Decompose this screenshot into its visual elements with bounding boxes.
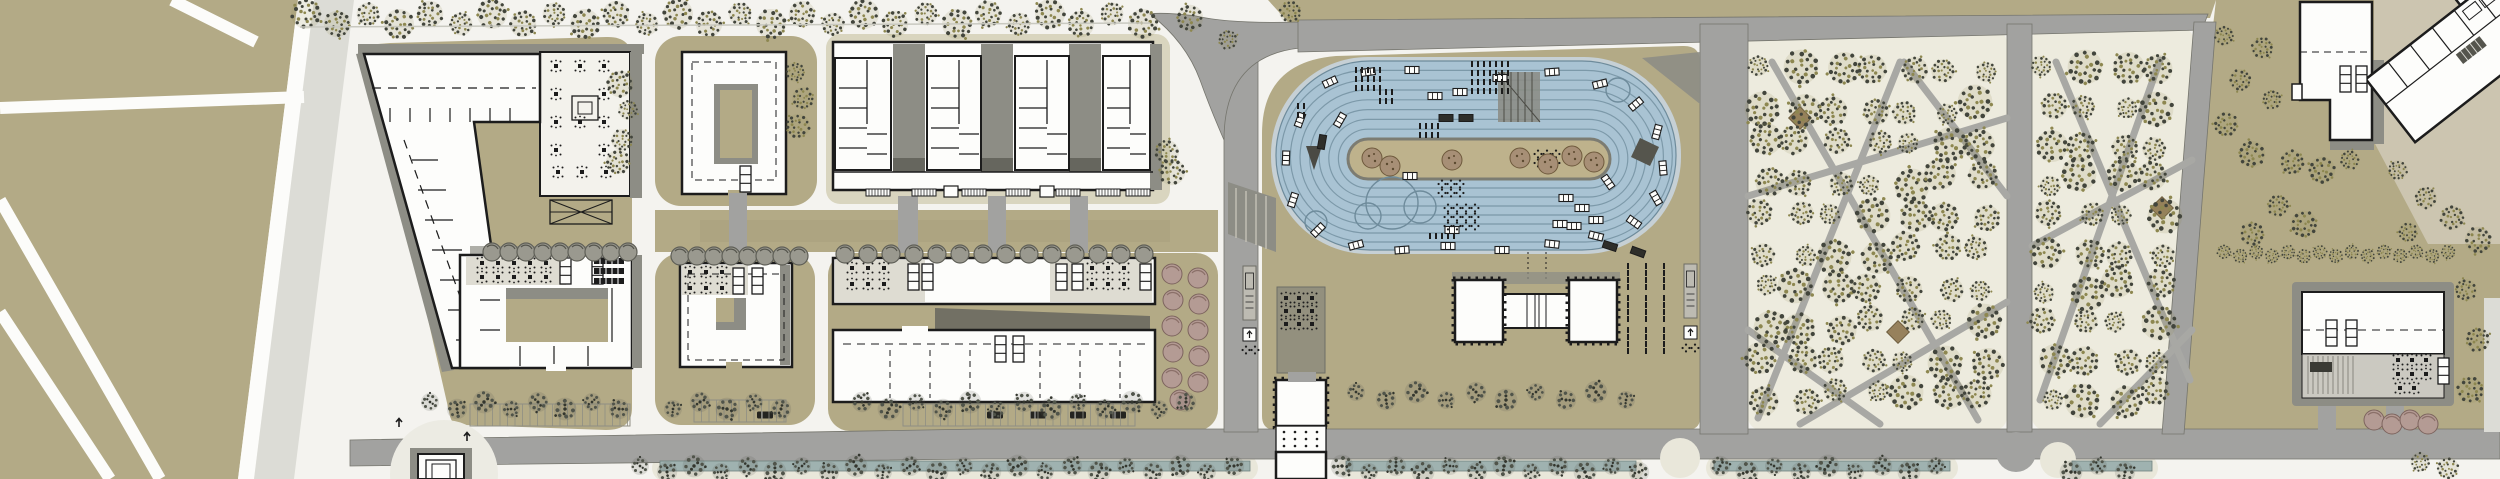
gate-building [1274, 378, 1328, 479]
depot-building [2292, 282, 2454, 406]
linear-housing-block [833, 258, 1155, 402]
avenue-east-of-oval [1700, 24, 1748, 434]
comb-housing-block [833, 42, 1162, 190]
courtyard-house-north [682, 52, 786, 197]
east-edge-path [2484, 298, 2500, 432]
site-plan-svg [0, 0, 2500, 479]
grove-street [2007, 24, 2032, 432]
avenue-west-of-oval [1224, 56, 1258, 432]
car-icon [2310, 362, 2332, 372]
site-plan-image: Architectural site plan — campus masterp… [0, 0, 2500, 479]
